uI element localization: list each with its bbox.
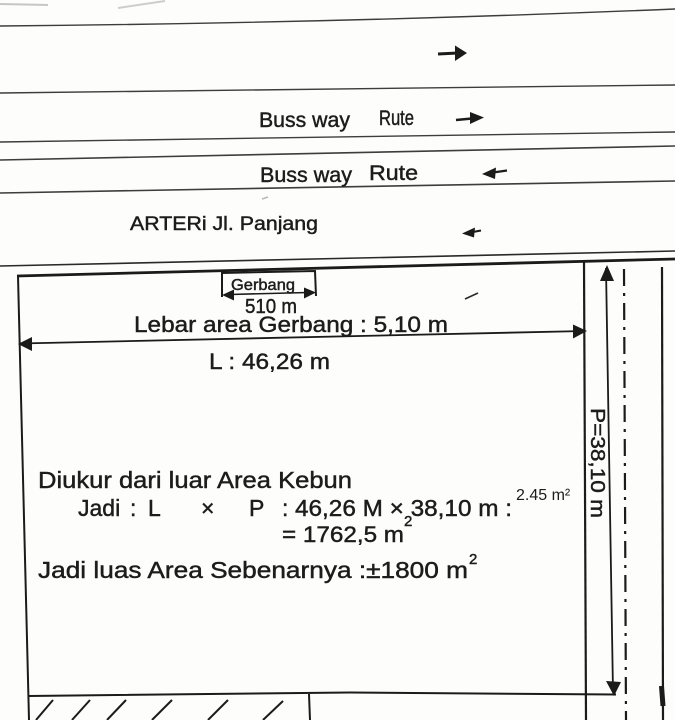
svg-text:P=38,10 m: P=38,10 m xyxy=(586,408,608,518)
svg-text:Jadi: Jadi xyxy=(78,495,120,521)
svg-text:2: 2 xyxy=(469,551,477,568)
svg-text:L : 46,26 m: L : 46,26 m xyxy=(209,349,330,374)
svg-text:2.45 m²: 2.45 m² xyxy=(516,487,571,504)
svg-text:Lebar area Gerbang : 5,10 m: Lebar area Gerbang : 5,10 m xyxy=(134,312,448,337)
svg-text:Jadi luas Area Sebenarnya: Jadi luas Area Sebenarnya :±1800 m xyxy=(38,557,468,583)
svg-text:2: 2 xyxy=(404,513,412,530)
svg-text:P: P xyxy=(249,495,264,521)
svg-text:Buss way: Buss way xyxy=(260,164,353,187)
svg-text:Rute: Rute xyxy=(369,162,418,185)
svg-text:×: × xyxy=(201,495,214,521)
svg-text:ARTERi Jl. Panjang: ARTERi Jl. Panjang xyxy=(130,214,318,235)
svg-text:Gerbang: Gerbang xyxy=(231,277,295,294)
svg-text:Buss way: Buss way xyxy=(259,109,350,132)
svg-text:Diukur dari luar Area Kebun: Diukur dari luar Area Kebun xyxy=(38,467,352,493)
svg-text::: : xyxy=(130,495,136,521)
svg-text:= 1762,5 m: = 1762,5 m xyxy=(282,522,404,547)
svg-text:Rute: Rute xyxy=(379,107,414,130)
svg-text:L: L xyxy=(148,495,161,521)
svg-text::: : xyxy=(282,495,288,521)
